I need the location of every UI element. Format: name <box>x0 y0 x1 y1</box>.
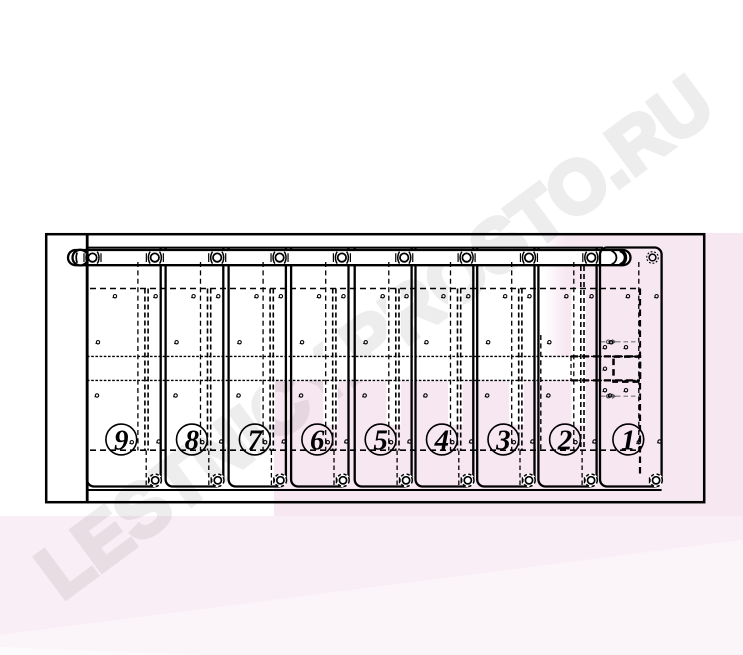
svg-text:5: 5 <box>373 425 388 457</box>
svg-text:6: 6 <box>310 425 325 457</box>
svg-text:4: 4 <box>434 425 450 457</box>
svg-text:3: 3 <box>495 425 511 457</box>
svg-text:2: 2 <box>557 425 573 457</box>
svg-text:7: 7 <box>248 425 264 457</box>
svg-text:1: 1 <box>621 425 636 457</box>
svg-text:8: 8 <box>185 425 200 457</box>
svg-text:9: 9 <box>114 425 129 457</box>
